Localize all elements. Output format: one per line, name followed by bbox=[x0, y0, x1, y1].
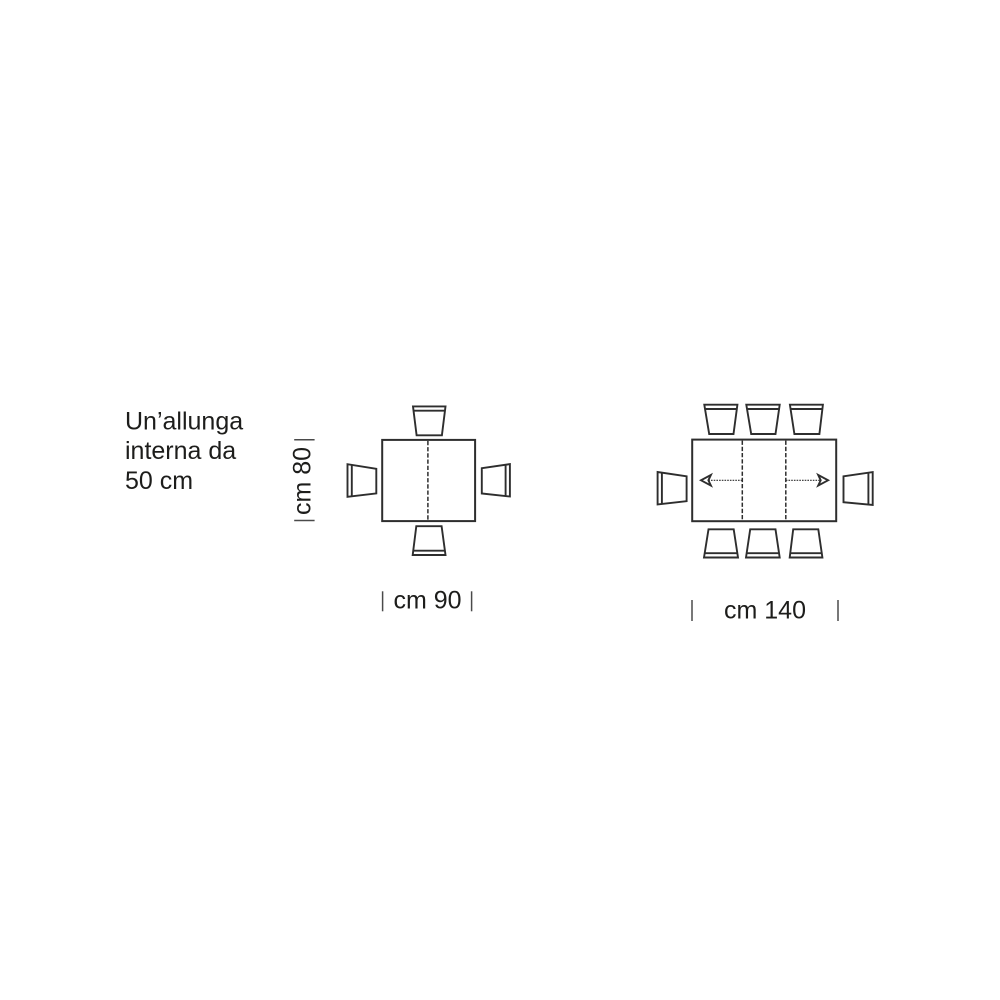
svg-text:50 cm: 50 cm bbox=[125, 467, 193, 495]
svg-text:interna da: interna da bbox=[125, 437, 236, 465]
svg-text:cm 80: cm 80 bbox=[289, 447, 317, 515]
svg-text:cm 140: cm 140 bbox=[724, 597, 806, 625]
svg-text:Un’allunga: Un’allunga bbox=[125, 408, 243, 436]
svg-text:cm 90: cm 90 bbox=[393, 587, 461, 615]
